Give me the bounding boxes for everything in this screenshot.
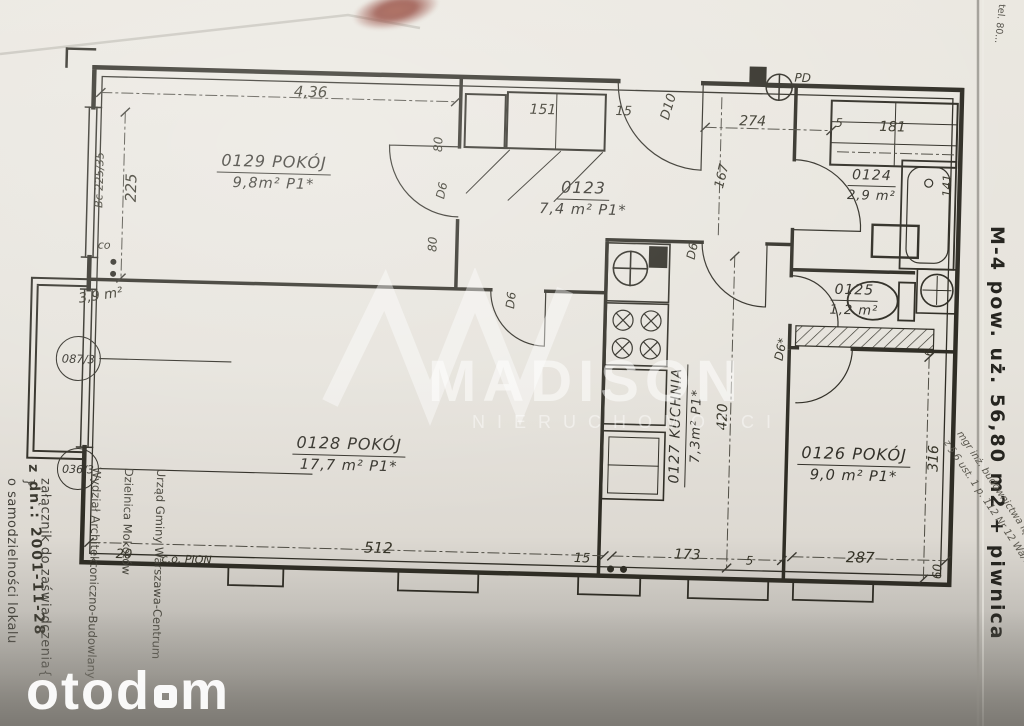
dim-door-80-a: 80 [432, 137, 444, 153]
room-area: 9,8m² [232, 175, 280, 192]
radiator-co-label: co [98, 239, 111, 250]
room-id: 0128 [296, 433, 341, 453]
otodom-logo-text-suffix: m [180, 661, 230, 721]
room-label-0126: 0126 POKÓJ 9,0 m² P1* [786, 443, 922, 487]
room-name: POKÓJ [347, 434, 402, 454]
room-label-0129: 0129 POKÓJ 9,8m² P1* [188, 150, 359, 194]
attachment-line-2: o samodzielności lokalu [4, 478, 19, 644]
dim-left-225: 225 [124, 173, 140, 202]
door-label-d6-a: D6 [434, 181, 449, 200]
dim-bottom-5: 5 [746, 555, 754, 567]
dim-top-274: 274 [739, 114, 766, 129]
vent-label-pd: PD [794, 72, 811, 84]
madison-watermark-sub: NIERUCHOMOŚCI [472, 412, 783, 433]
attachment-line-1: załącznik do zaświadczenia [38, 478, 53, 669]
dim-top-closet: 151 [529, 103, 556, 118]
dim-top-width: 4,36 [294, 85, 328, 101]
room-id: 0123 [561, 178, 606, 198]
office-line-3: Wydział Architektoniczno-Budowlany [84, 467, 104, 679]
dim-window-bc: Bc 225/35 [93, 152, 105, 208]
room-label-0124: 0124 2,9 m² [821, 163, 922, 205]
room-name: POKÓJ [272, 152, 327, 172]
office-line-2: Dzielnica Mokotów [119, 468, 136, 575]
office-line-1: Urząd Gminy Warszawa-Centrum [149, 468, 168, 659]
room-id: 0129 [221, 151, 266, 171]
dim-hall-167: 167 [713, 163, 731, 190]
room-label-0125: 0125 1,2 m² [806, 278, 902, 319]
dim-bottom-173: 173 [674, 548, 701, 563]
attachment-note: załącznik do zaświadczenia{ }o samodziel… [2, 478, 70, 678]
dim-bottom-60: 60 [931, 564, 943, 580]
room-area: 17,7 m² [300, 457, 364, 475]
room-floor: P1* [286, 176, 315, 193]
door-label-d10: D10 [659, 92, 679, 121]
dim-right-6: 6 [923, 349, 934, 356]
dim-top-181: 181 [879, 120, 906, 135]
room-id: 0126 [801, 443, 846, 463]
apartment-summary-note: M-4 pow. uż. 56,80 m2 + piwnica [986, 226, 1008, 641]
room-floor: P1* [869, 469, 898, 486]
dim-top-5: 5 [835, 117, 843, 129]
reference-label: 087/3 [62, 351, 96, 366]
room-floor: P1* [598, 203, 627, 220]
otodom-logo-text: otod [26, 661, 151, 721]
balcony-area-label: 3,9 m² [78, 286, 124, 306]
dim-141: 141 [941, 174, 954, 197]
room-id: 0125 [834, 282, 874, 299]
otodom-logo-square [154, 685, 177, 708]
room-floor: P1* [369, 459, 398, 476]
dim-bottom-287: 287 [846, 550, 875, 566]
room-label-0123: 0123 7,4 m² P1* [518, 176, 649, 219]
dim-door-80-b: 80 [426, 236, 438, 252]
room-area: 1,2 m² [829, 303, 878, 319]
room-area: 2,9 m² [847, 188, 896, 204]
room-area: 7,4 m² [539, 201, 593, 218]
madison-watermark: MADISON [428, 348, 744, 415]
room-label-0128: 0128 POKÓJ 17,7 m² P1* [256, 432, 442, 477]
scanned-floorplan-photo: 0129 POKÓJ 9,8m² P1* 0123 7,4 m² P1* 012… [0, 0, 1024, 726]
dim-bottom-512: 512 [364, 541, 393, 557]
office-stamp: Urząd Gminy Warszawa-Centrum Dzielnica M… [83, 467, 185, 681]
dim-top-15: 15 [615, 105, 632, 118]
room-id: 0127 [666, 444, 683, 484]
room-id: 0124 [852, 167, 892, 184]
reference-circle-087-3: 087/3 [55, 335, 101, 381]
door-label-d6-c: D6 [685, 242, 700, 261]
door-label-d6-star: D6* [773, 337, 789, 362]
room-name: POKÓJ [852, 444, 907, 464]
dim-bottom-15: 15 [574, 552, 591, 565]
otodom-logo: otodm [26, 660, 230, 722]
dim-right-316: 316 [927, 445, 942, 472]
room-area: 9,0 m² [810, 467, 864, 484]
